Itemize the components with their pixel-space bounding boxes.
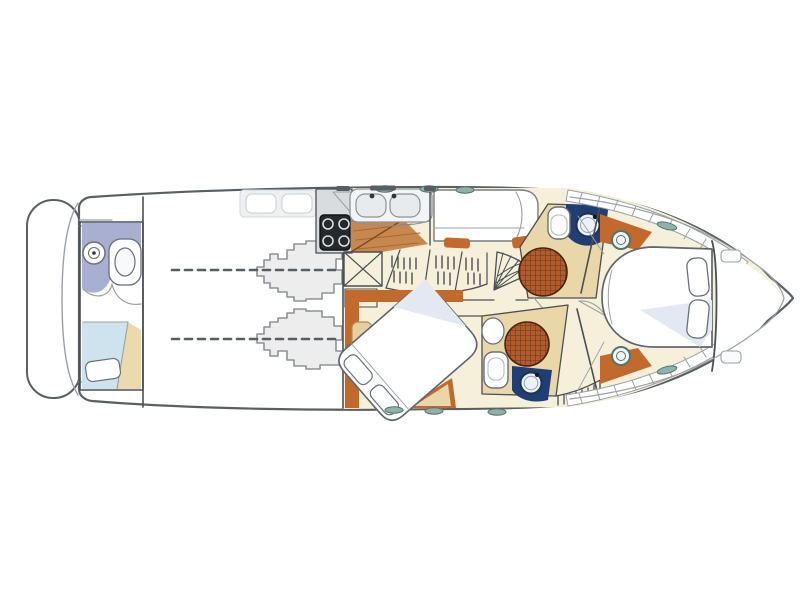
guest-shelf-trim — [444, 237, 470, 248]
yacht-deck-plan — [0, 0, 800, 600]
portlight-oval — [488, 409, 506, 415]
cockpit-seat-cushion — [282, 194, 312, 213]
port-shower-teak-grate — [519, 248, 567, 296]
crew-washbasin — [115, 248, 135, 276]
deck-hatch — [612, 231, 630, 249]
cockpit-seats — [240, 190, 316, 217]
galley — [316, 189, 432, 253]
deck-plan-drawing — [0, 0, 800, 600]
master-pillow — [686, 299, 710, 339]
faucet — [392, 194, 397, 199]
cockpit-seat-cushion — [246, 194, 276, 213]
starboard-head-bidet — [482, 318, 504, 344]
starboard-head-faucet — [535, 373, 539, 377]
master-pillow — [686, 257, 710, 297]
portlight-oval — [385, 407, 403, 413]
foredeck-hatch — [721, 351, 741, 363]
deck-vent-bar — [424, 186, 436, 191]
deck-hatch — [612, 347, 630, 365]
faucet — [370, 194, 375, 199]
starboard-shower-teak-grate — [505, 322, 549, 366]
swim-platform — [27, 200, 80, 398]
deck-vent-bar — [336, 186, 350, 191]
crew-berth-pillow — [85, 358, 121, 383]
portlight-oval — [456, 187, 474, 193]
deck-vent-bar — [370, 186, 396, 191]
foredeck-hatch — [721, 250, 741, 262]
portlight-oval — [425, 408, 443, 414]
crew-toilet-drain — [92, 251, 96, 255]
